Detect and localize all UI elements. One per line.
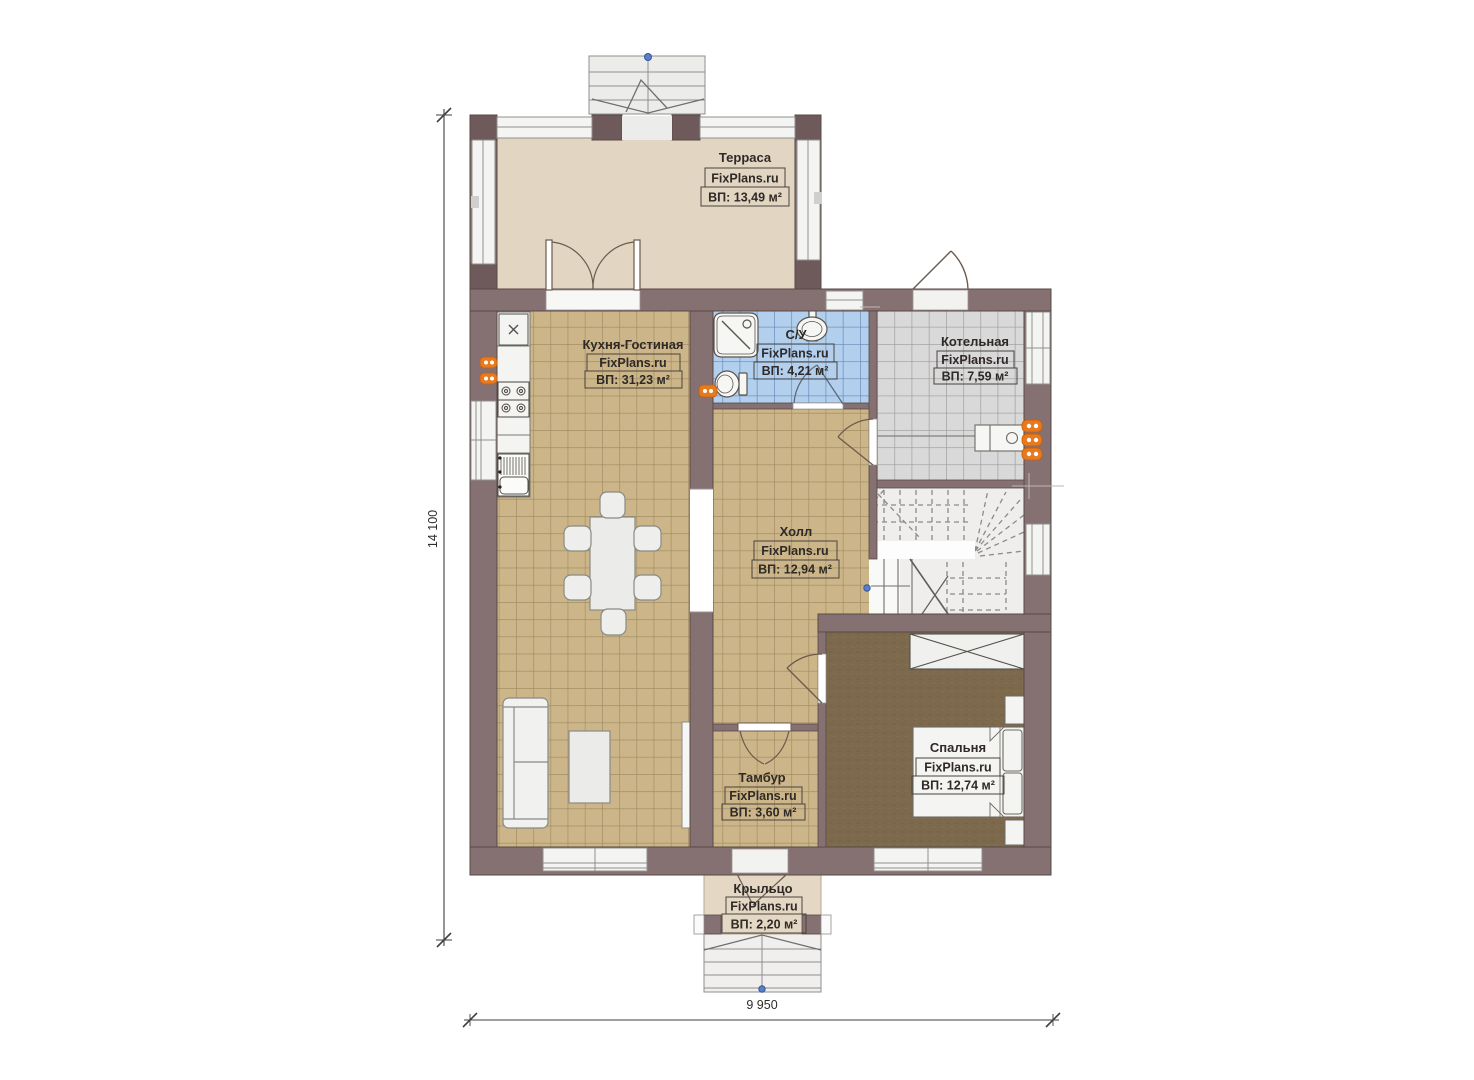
- svg-text:Крыльцо: Крыльцо: [733, 881, 792, 896]
- svg-text:ВП: 31,23 м²: ВП: 31,23 м²: [596, 373, 670, 387]
- svg-text:FixPlans.ru: FixPlans.ru: [924, 761, 991, 775]
- svg-text:Кухня-Гостиная: Кухня-Гостиная: [582, 337, 683, 352]
- svg-text:FixPlans.ru: FixPlans.ru: [729, 789, 796, 803]
- svg-text:Терраса: Терраса: [719, 150, 772, 165]
- svg-text:ВП: 12,94 м²: ВП: 12,94 м²: [758, 563, 832, 577]
- svg-text:Котельная: Котельная: [941, 334, 1009, 349]
- svg-text:ВП: 4,21 м²: ВП: 4,21 м²: [762, 364, 829, 378]
- svg-text:С/У: С/У: [785, 327, 807, 342]
- svg-text:ВП: 2,20 м²: ВП: 2,20 м²: [731, 918, 798, 932]
- svg-text:14 100: 14 100: [426, 510, 440, 548]
- svg-text:FixPlans.ru: FixPlans.ru: [730, 900, 797, 914]
- svg-text:FixPlans.ru: FixPlans.ru: [711, 172, 778, 186]
- svg-text:9 950: 9 950: [746, 998, 777, 1012]
- svg-text:FixPlans.ru: FixPlans.ru: [941, 353, 1008, 367]
- svg-text:Спальня: Спальня: [930, 740, 986, 755]
- svg-text:FixPlans.ru: FixPlans.ru: [761, 544, 828, 558]
- svg-text:FixPlans.ru: FixPlans.ru: [761, 347, 828, 361]
- svg-text:ВП: 3,60 м²: ВП: 3,60 м²: [730, 806, 797, 820]
- svg-text:ВП: 7,59 м²: ВП: 7,59 м²: [942, 370, 1009, 384]
- svg-text:ВП: 12,74 м²: ВП: 12,74 м²: [921, 779, 995, 793]
- svg-text:ВП: 13,49 м²: ВП: 13,49 м²: [708, 191, 782, 205]
- svg-text:FixPlans.ru: FixPlans.ru: [599, 356, 666, 370]
- svg-text:Тамбур: Тамбур: [738, 770, 785, 785]
- svg-text:Холл: Холл: [780, 524, 813, 539]
